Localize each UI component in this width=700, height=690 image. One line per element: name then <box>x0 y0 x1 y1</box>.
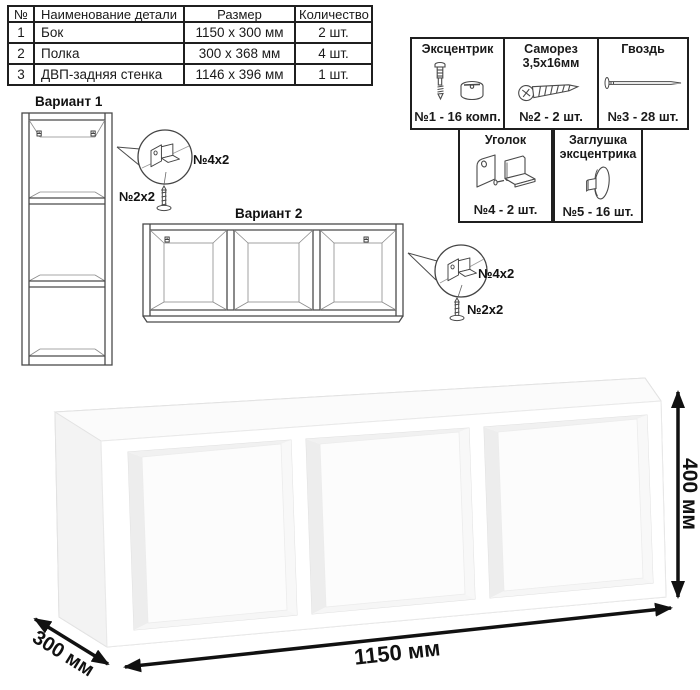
col-header-qty: Количество <box>295 6 372 22</box>
screw-icon <box>450 298 464 321</box>
col-header-num: № <box>8 6 34 22</box>
variant1-diagram <box>22 113 112 365</box>
variant2-diagram <box>143 224 403 322</box>
part-num: 2 <box>8 43 34 64</box>
variant1-callout: №4х2 №2х2 <box>117 130 229 211</box>
table-row: 1 Бок 1150 х 300 мм 2 шт. <box>8 22 372 43</box>
shelf-compartment <box>306 428 475 614</box>
part-size: 1146 х 396 мм <box>184 64 295 85</box>
main-shelf-render: 1150 мм 400 мм 300 мм <box>0 370 700 690</box>
bracket-count-label: №4х2 <box>478 266 514 281</box>
col-header-size: Размер <box>184 6 295 22</box>
variant2-title: Вариант 2 <box>235 206 302 221</box>
part-name: Бок <box>34 22 184 43</box>
variant1-title: Вариант 1 <box>35 94 103 109</box>
shelf-compartment <box>484 415 653 598</box>
bracket-count-label: №4х2 <box>193 152 229 167</box>
shelf-compartment <box>128 440 297 630</box>
part-size: 1150 х 300 мм <box>184 22 295 43</box>
hardware-title: Гвоздь <box>621 42 665 56</box>
parts-table: № Наименование детали Размер Количество … <box>7 5 373 86</box>
col-header-name: Наименование детали <box>34 6 184 22</box>
parts-table-header-row: № Наименование детали Размер Количество <box>8 6 372 22</box>
part-num: 1 <box>8 22 34 43</box>
part-qty: 4 шт. <box>295 43 372 64</box>
part-num: 3 <box>8 64 34 85</box>
hardware-title: Саморез 3,5х16мм <box>505 42 597 71</box>
screw-count-label: №2х2 <box>467 302 503 317</box>
part-name: Полка <box>34 43 184 64</box>
part-qty: 1 шт. <box>295 64 372 85</box>
hardware-title: Эксцентрик <box>422 42 494 56</box>
part-qty: 2 шт. <box>295 22 372 43</box>
screw-icon <box>157 186 171 211</box>
assembly-variants-diagram: Вариант 1 №4х2 №2х2 <box>0 88 700 370</box>
part-name: ДВП-задняя стенка <box>34 64 184 85</box>
screw-count-label: №2х2 <box>119 189 155 204</box>
part-size: 300 х 368 мм <box>184 43 295 64</box>
dimension-height-label: 400 мм <box>678 458 700 530</box>
table-row: 2 Полка 300 х 368 мм 4 шт. <box>8 43 372 64</box>
shelf-body <box>55 378 666 647</box>
table-row: 3 ДВП-задняя стенка 1146 х 396 мм 1 шт. <box>8 64 372 85</box>
variant2-callout: №4х2 №2х2 <box>408 245 514 321</box>
